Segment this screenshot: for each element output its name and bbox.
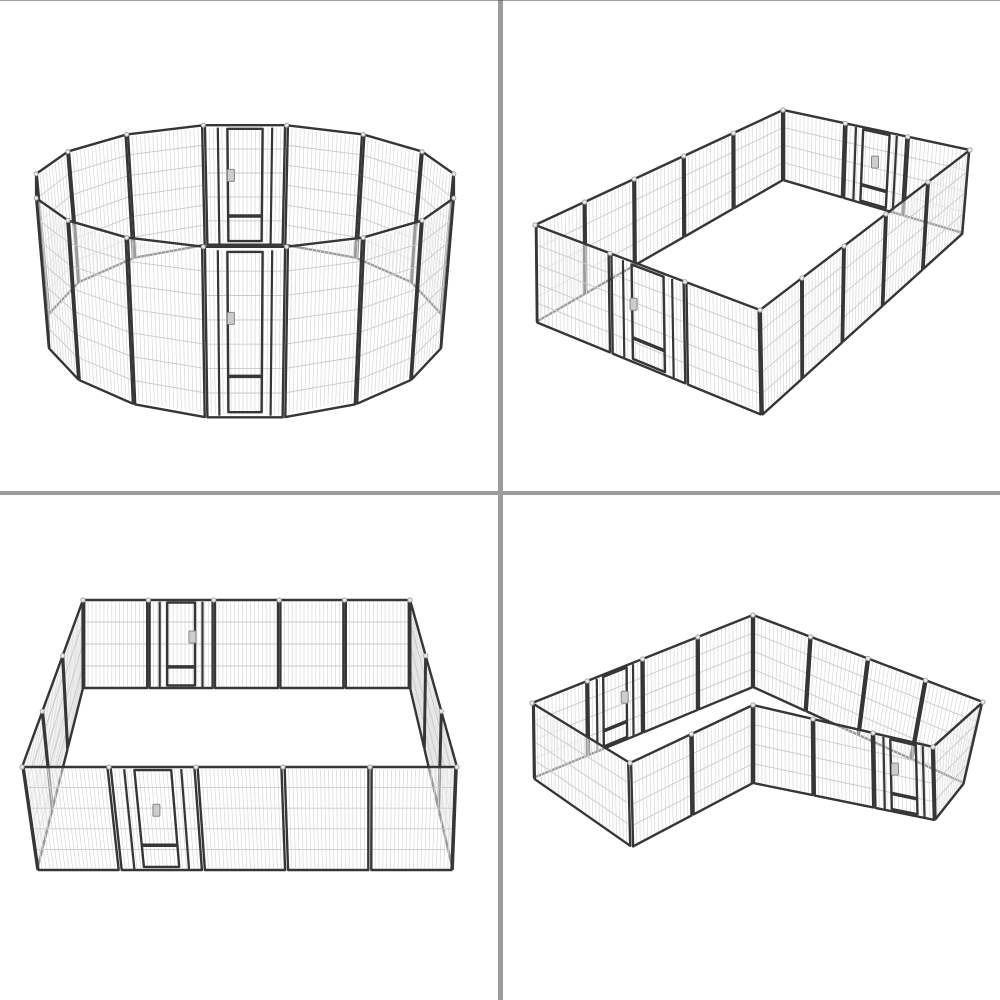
view-cell-circle[interactable]: [0, 0, 496, 489]
grid-divider-horizontal: [0, 491, 1000, 495]
grid-divider-vertical: [498, 0, 503, 1000]
view-cell-square[interactable]: [0, 496, 496, 1000]
product-image-collage: [0, 0, 1000, 1000]
view-cell-rectangle[interactable]: [503, 0, 1000, 489]
top-edge-line: [0, 0, 1000, 1]
view-cell-l-shape[interactable]: [503, 496, 1000, 1000]
